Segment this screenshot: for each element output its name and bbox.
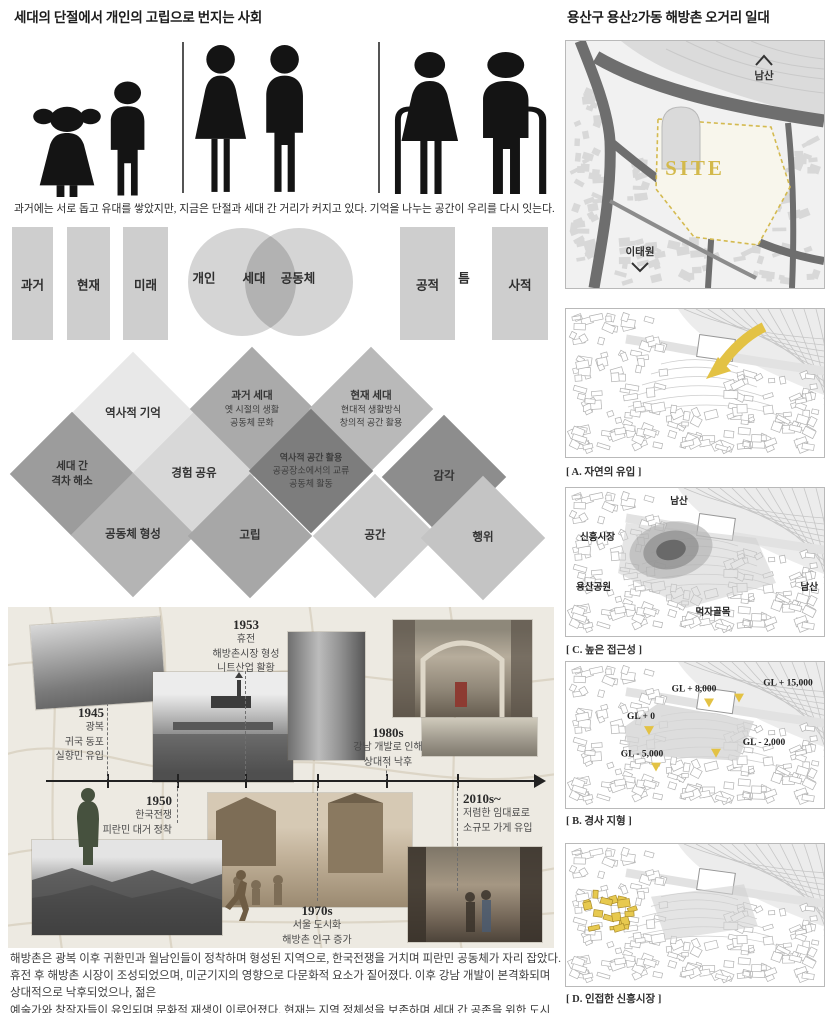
namsan-label: 남산	[754, 69, 774, 82]
itaewon-label: 이태원	[626, 245, 655, 258]
panel-b-caption: [ B. 경사 지형 ]	[566, 813, 632, 828]
site-label: SITE	[665, 156, 725, 180]
event-1945: 1945 광복 귀국 동포 실향민 유입	[56, 705, 105, 765]
panel-a-nature-inflow	[565, 308, 825, 458]
running-boy-cutout	[221, 869, 257, 921]
gl-label: GL - 5,000	[621, 750, 664, 760]
block-present: 현재	[67, 227, 110, 340]
panel-c-caption: [ C. 높은 접근성 ]	[566, 642, 642, 657]
venn-label-generation: 세대	[242, 268, 265, 287]
summary-line: 휴전 후 해방촌 시장이 조성되었으며, 미군기지의 영향으로 다문화적 요소가…	[10, 968, 562, 1002]
label-yongsan-park: 용산공원	[576, 581, 611, 593]
adult-pair-pictogram	[195, 45, 303, 192]
block-private: 사적	[492, 227, 548, 340]
left-title: 세대의 단절에서 개인의 고립으로 번지는 사회	[14, 6, 262, 26]
block-past: 과거	[12, 227, 53, 340]
site-location-map: SITE 남산 이태원	[565, 40, 825, 289]
elderly-pair-pictogram	[398, 52, 543, 194]
photo-1950-rooftops	[32, 840, 222, 935]
leader-1950	[177, 783, 178, 823]
label-food-alley: 먹자골목	[696, 606, 731, 618]
venn-label-individual: 개인	[192, 268, 215, 287]
panel-a-caption: [ A. 자연의 유입 ]	[566, 464, 641, 479]
summary-paragraph: 해방촌은 광복 이후 귀환민과 월남인들이 정착하며 형성된 지역으로, 한국전…	[10, 951, 562, 1013]
event-1980s: 1980s 강남 개발로 인해 상대적 낙후	[328, 725, 448, 770]
leader-2010s	[457, 783, 458, 891]
event-1953: 1953 휴전 해방촌시장 형성 니트산업 활황	[186, 617, 306, 677]
photo-2010s-alley	[408, 847, 542, 942]
label-namsan-top: 남산	[670, 495, 688, 507]
right-title: 용산구 용산2가동 해방촌 오거리 일대	[567, 6, 770, 26]
concept-row: 과거 현재 미래 개인 세대 공동체 공적 틈 사적	[12, 227, 560, 342]
generation-pictograms	[14, 40, 554, 197]
history-collage: 1945 광복 귀국 동포 실향민 유입 1953 휴전 해방촌시장 형성 니트…	[8, 607, 554, 948]
gl-label: GL - 2,000	[743, 738, 786, 748]
green-figure-cutout	[73, 787, 103, 865]
timeline-axis	[46, 780, 538, 782]
block-public: 공적	[400, 227, 455, 340]
summary-line: 예술가와 창작자들이 유입되며 문화적 재생이 이루어졌다. 현재는 지역 정체…	[10, 1003, 562, 1013]
gl-label: GL + 15,000	[763, 679, 813, 689]
diamond-diagram: 역사적 기억 세대 간격차 해소 경험 공유 공동체 형성 과거 세대옛 시절의…	[0, 348, 560, 598]
summary-line: 해방촌은 광복 이후 귀환민과 월남인들이 정착하며 형성된 지역으로, 한국전…	[10, 951, 562, 968]
panel-d-adjacent-market	[565, 843, 825, 987]
panel-d-caption: [ D. 인접한 신흥시장 ]	[566, 991, 661, 1006]
photo-1945-hillside	[30, 617, 166, 710]
gl-label: GL + 0	[627, 712, 655, 722]
timeline-arrowhead	[534, 774, 546, 788]
label-namsan-right: 남산	[801, 581, 819, 593]
photo-arcade-interior	[393, 620, 532, 717]
venn-label-community: 공동체	[281, 268, 316, 287]
event-1950: 1950 한국전쟁 피란민 대거 정착	[103, 793, 172, 838]
child-pair-pictogram	[33, 82, 144, 198]
label-sinheung-market: 신흥시장	[580, 531, 615, 543]
photo-1953-cathedral	[153, 672, 293, 782]
pictogram-caption: 과거에는 서로 돕고 유대를 쌓았지만, 지금은 단절과 세대 간 거리가 커지…	[14, 200, 559, 216]
panel-c-accessibility: 남산 신흥시장 용산공원 남산 먹자골목	[565, 487, 825, 637]
block-gap-label: 틈	[458, 268, 470, 287]
leader-1945	[107, 703, 108, 779]
poster-page: 세대의 단절에서 개인의 고립으로 번지는 사회 과거에는 서로 돕고 유대를 …	[0, 0, 832, 1013]
block-future: 미래	[123, 227, 168, 340]
event-1970s: 1970s 서울 도시화 해방촌 인구 증가	[257, 903, 377, 948]
panel-b-slope: GL + 8,000 GL + 15,000 GL + 0 GL - 2,000…	[565, 661, 825, 809]
leader-1970s	[317, 783, 318, 901]
gl-label: GL + 8,000	[672, 685, 717, 695]
event-2010s: 2010s~ 저렴한 임대료로 소규모 가게 유입	[463, 791, 532, 836]
leader-1953	[245, 671, 246, 779]
